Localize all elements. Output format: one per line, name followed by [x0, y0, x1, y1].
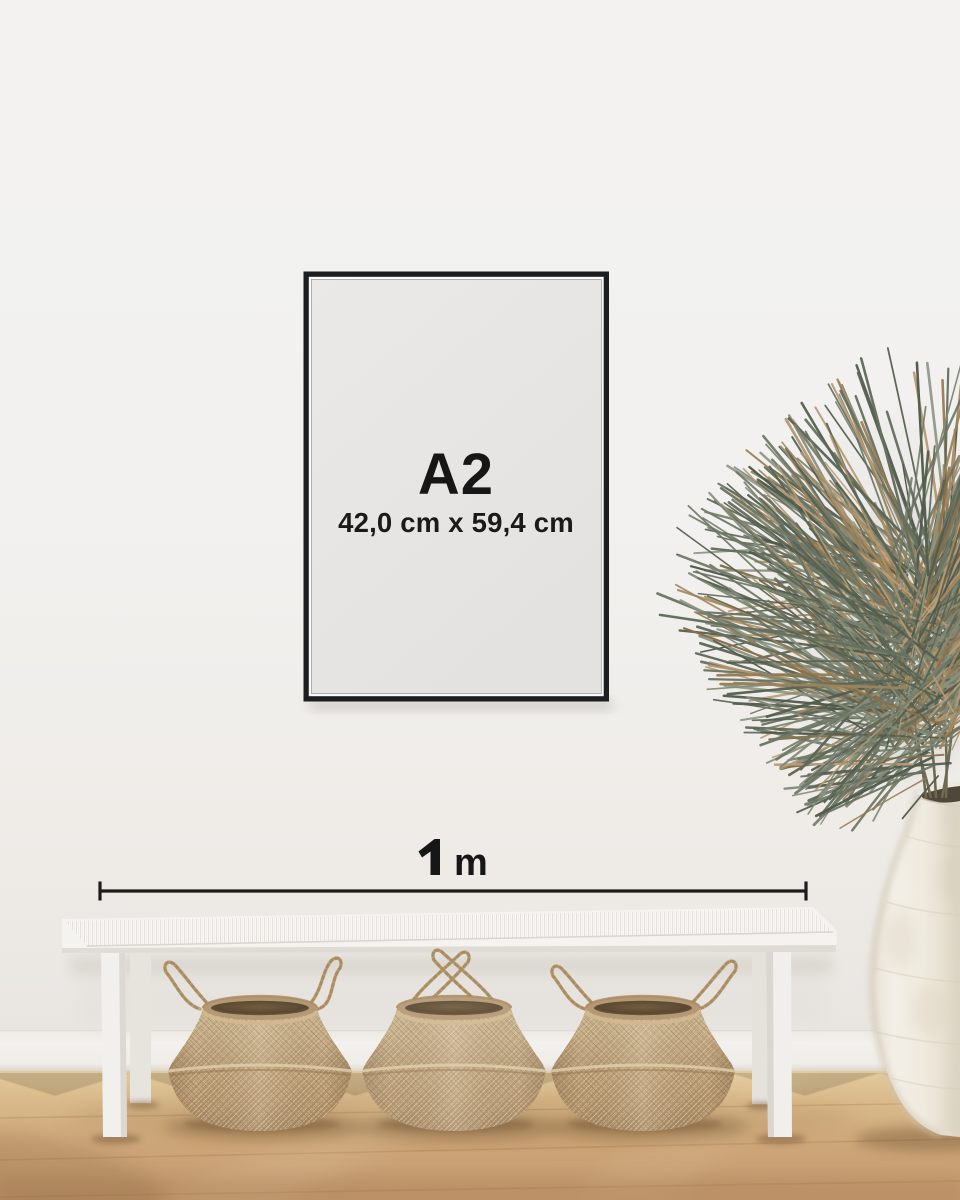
svg-text:A2: A2	[418, 442, 494, 507]
svg-text:m: m	[454, 842, 488, 884]
svg-text:42,0 cm x 59,4 cm: 42,0 cm x 59,4 cm	[338, 507, 574, 538]
